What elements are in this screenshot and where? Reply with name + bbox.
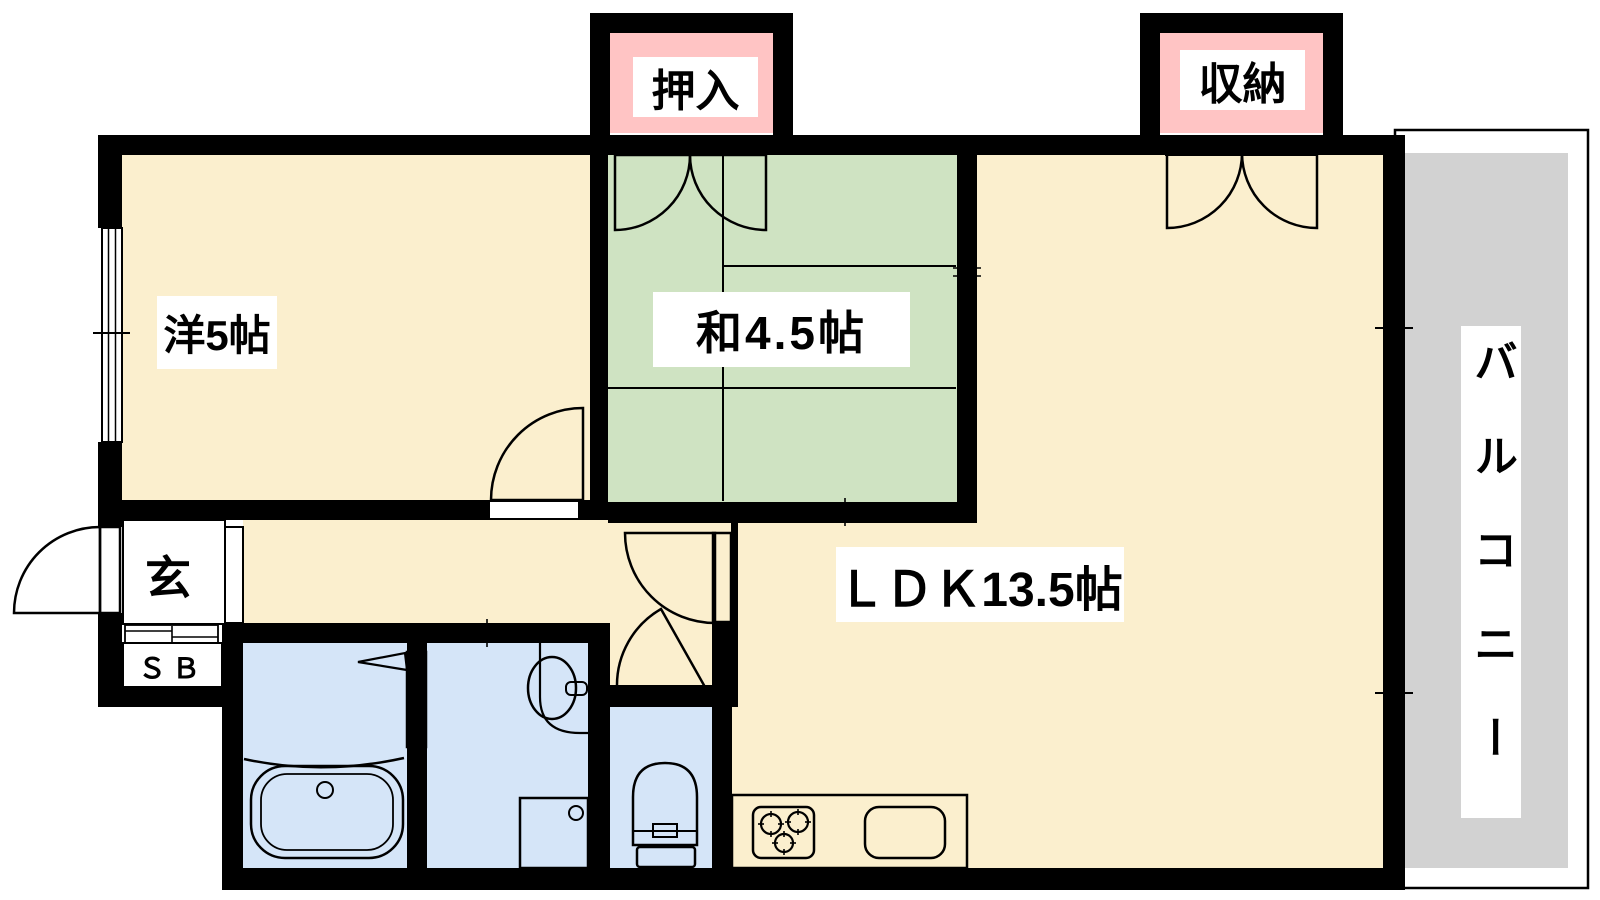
floorplan-drawing [0, 0, 1600, 900]
entrance-label: 玄 [137, 543, 199, 606]
balcony-label: バルコニー [1461, 326, 1521, 818]
hallway-alcove-floor [610, 623, 712, 685]
bathroom-floor [243, 643, 407, 868]
japanese-room-label: 和4.5帖 [653, 292, 910, 367]
entrance-inner-door [225, 527, 243, 623]
storage-label: 収納 [1180, 50, 1305, 110]
western-room-label: 洋5帖 [157, 296, 277, 369]
closet-label: 押入 [633, 57, 758, 117]
entrance-door [14, 527, 120, 613]
floorplan-page: 押入 収納 洋5帖 和4.5帖 ＬＤＫ13.5帖 玄 ＳＢ バルコニー [0, 0, 1600, 900]
entrance-step [125, 625, 218, 643]
ldk-floor-upper [977, 153, 1383, 523]
ldk-label: ＬＤＫ13.5帖 [836, 547, 1124, 622]
washroom-floor [427, 643, 588, 868]
shoe-box-label: ＳＢ [133, 649, 211, 684]
